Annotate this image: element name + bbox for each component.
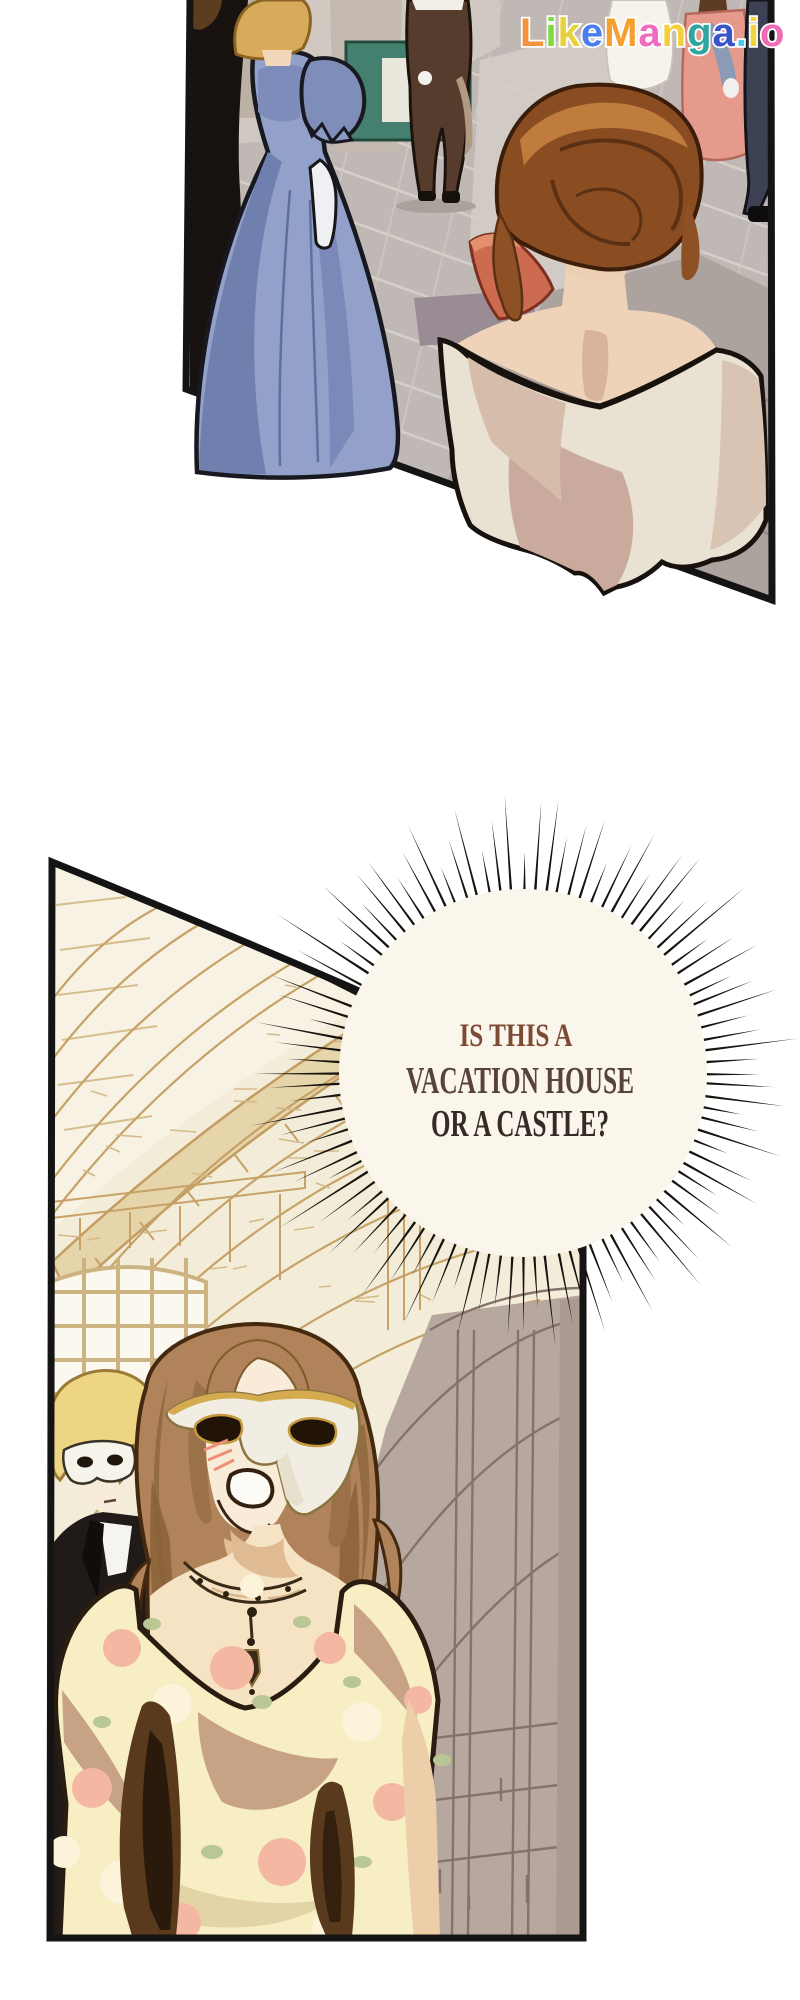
svg-text:LikeManga.io: LikeManga.io [520,11,785,55]
svg-text:IS THIS A: IS THIS A [460,1018,573,1054]
svg-text:VACATION HOUSE: VACATION HOUSE [406,1060,634,1102]
svg-text:OR A CASTLE?: OR A CASTLE? [431,1103,609,1145]
